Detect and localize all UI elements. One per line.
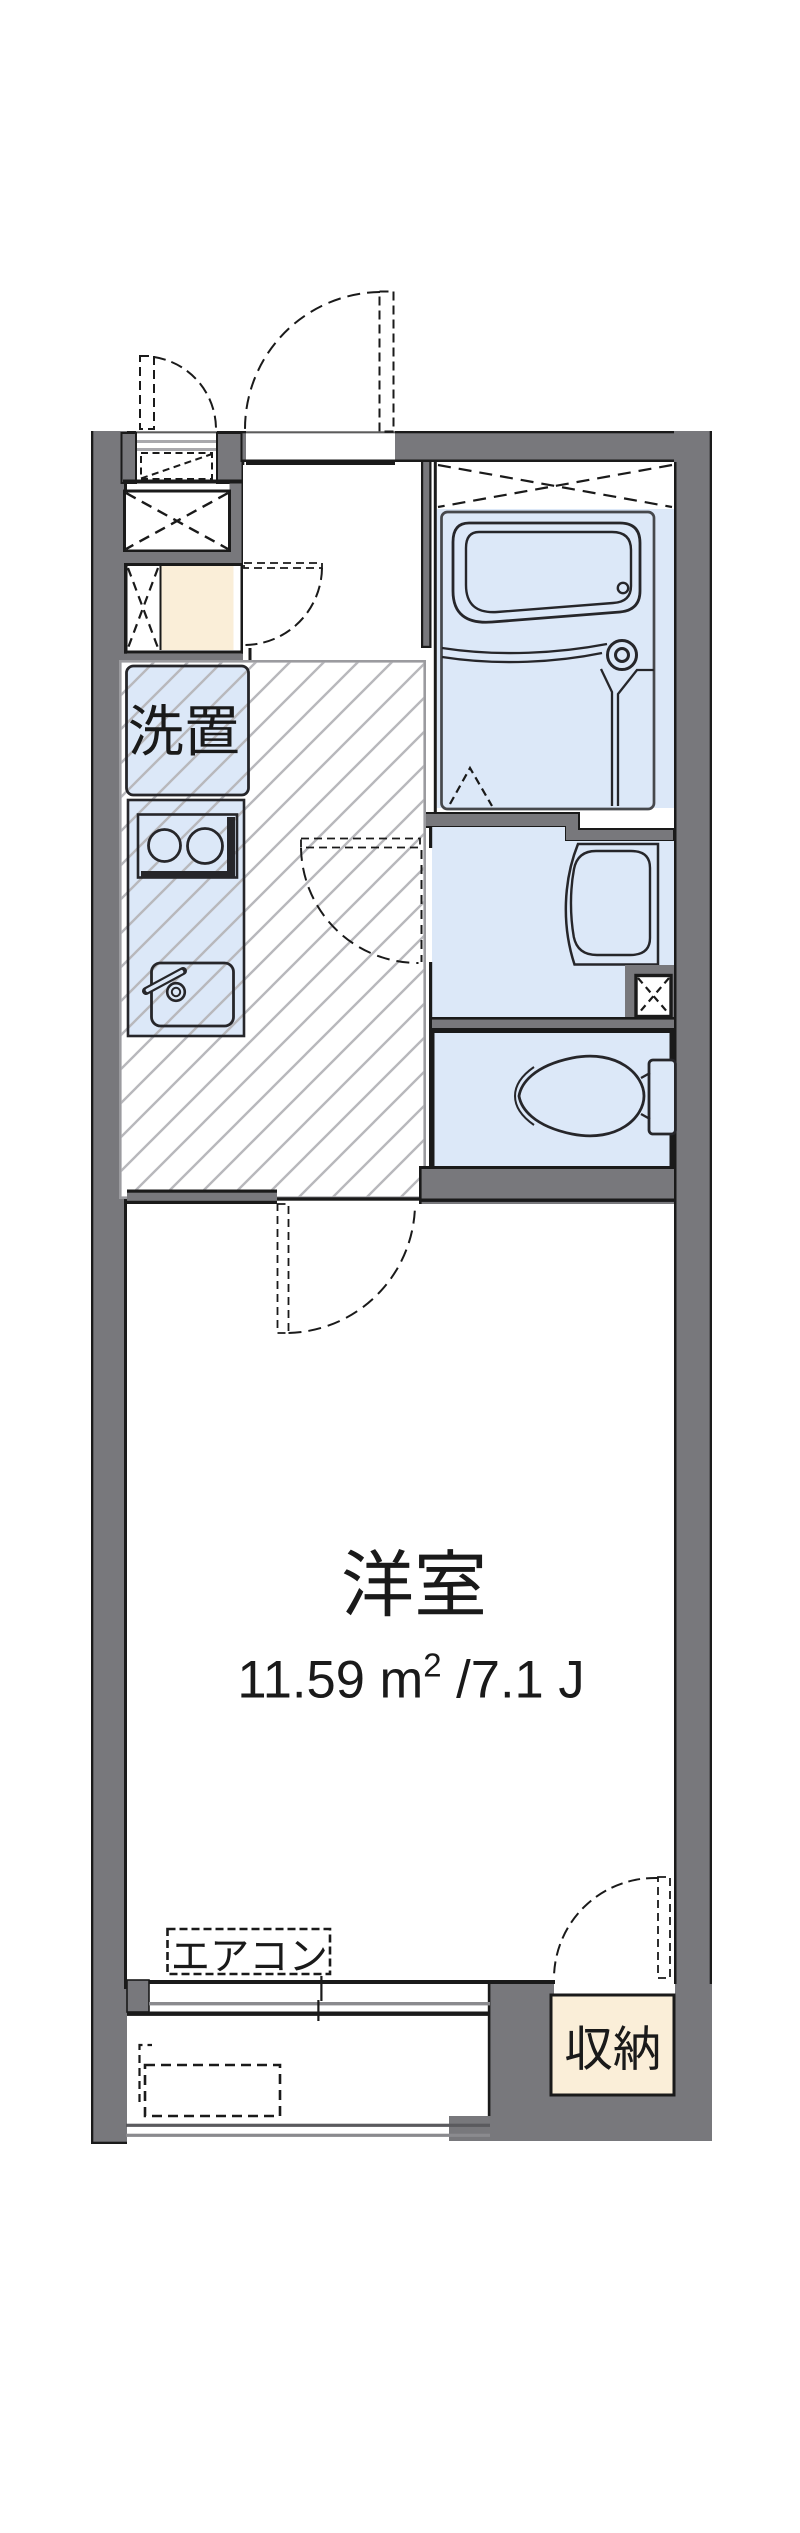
svg-text:11.59 m2 /7.1 J: 11.59 m2 /7.1 J (237, 1647, 584, 1710)
